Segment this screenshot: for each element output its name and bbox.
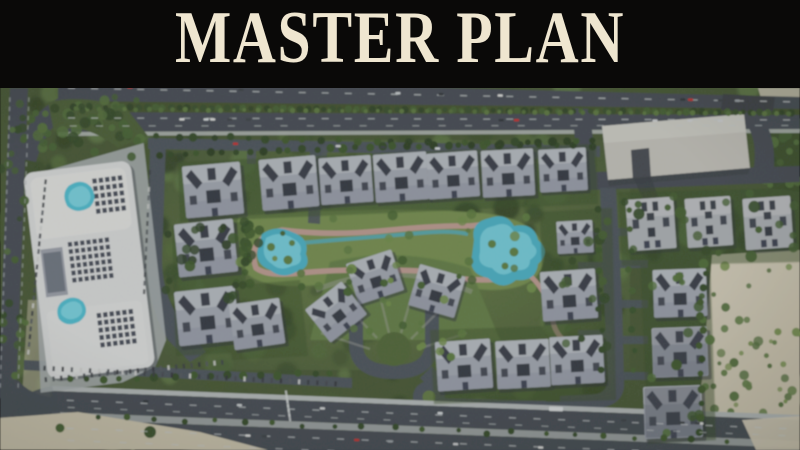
svg-text:MASTER PLAN: MASTER PLAN <box>175 0 625 79</box>
